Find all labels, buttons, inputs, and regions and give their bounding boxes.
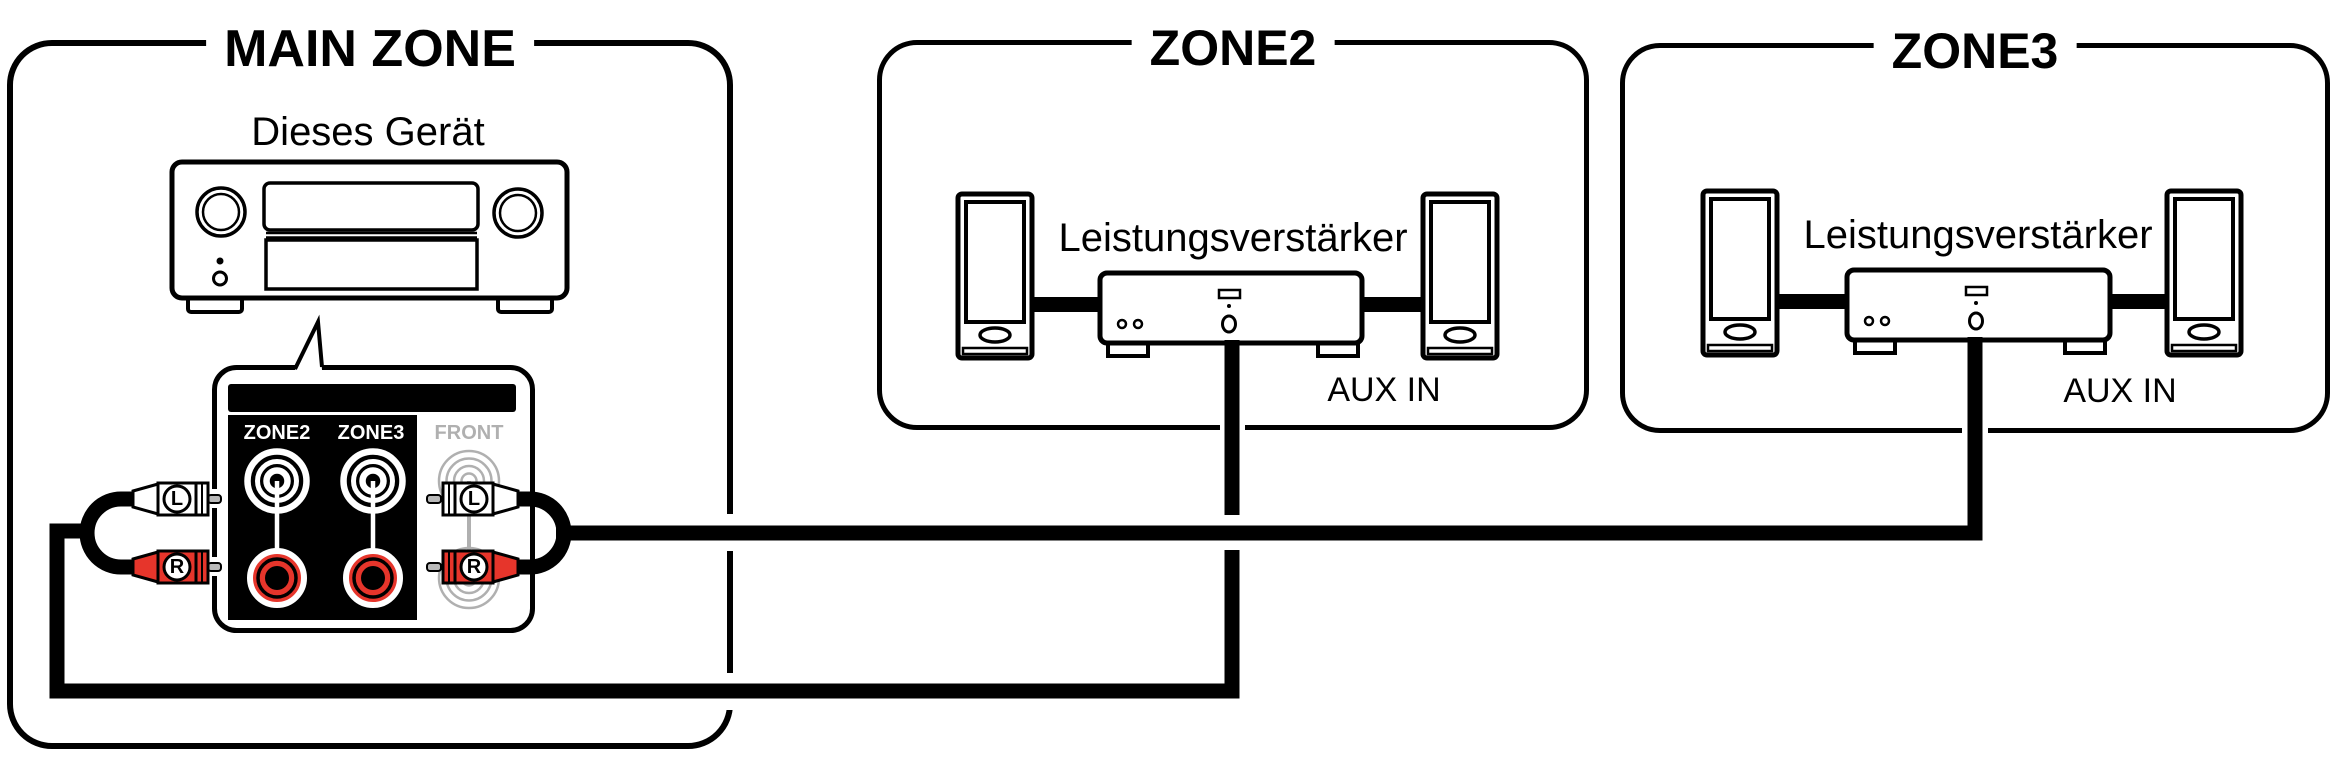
amplifier-label-zone2: Leistungsverstärker bbox=[1058, 218, 1407, 258]
plug-letter-l: L bbox=[468, 489, 480, 509]
panel-label-front: FRONT bbox=[435, 423, 504, 443]
main-zone-title: MAIN ZONE bbox=[206, 23, 534, 75]
plug-letter-l: L bbox=[171, 489, 183, 509]
plug-letter-r: R bbox=[170, 557, 184, 577]
plug-letter-r: R bbox=[467, 557, 481, 577]
zone2-title: ZONE2 bbox=[1132, 23, 1335, 73]
zone3-title: ZONE3 bbox=[1874, 26, 2077, 76]
connection-diagram: MAIN ZONE ZONE2 ZONE3 bbox=[0, 0, 2337, 769]
panel-label-zone2: ZONE2 bbox=[244, 423, 311, 443]
aux-in-label-zone2: AUX IN bbox=[1327, 373, 1440, 407]
aux-in-label-zone3: AUX IN bbox=[2063, 374, 2176, 408]
cable-cross-gap bbox=[1219, 515, 1245, 550]
panel-label-zone3: ZONE3 bbox=[338, 423, 405, 443]
amplifier-label-zone3: Leistungsverstärker bbox=[1803, 215, 2152, 255]
device-label: Dieses Gerät bbox=[251, 112, 484, 152]
